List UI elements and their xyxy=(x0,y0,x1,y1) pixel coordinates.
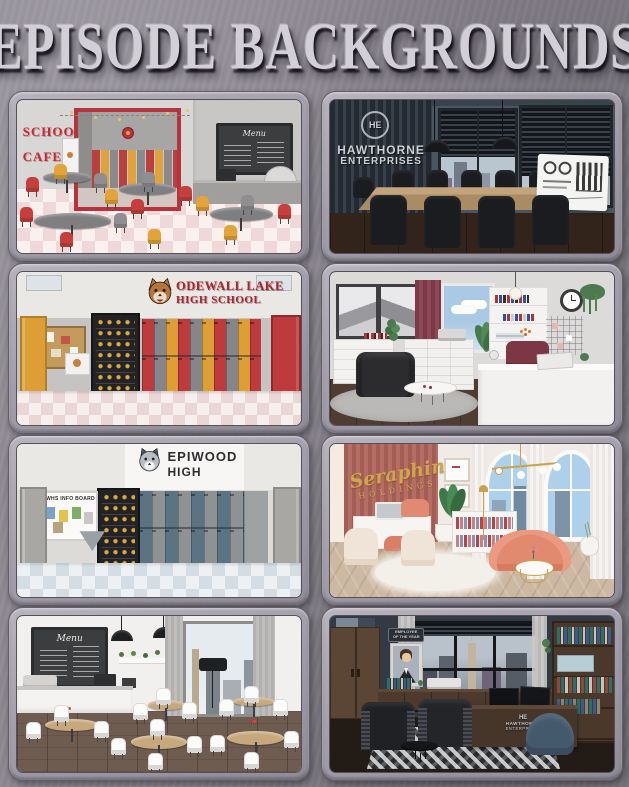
poster xyxy=(72,507,81,519)
poster: EPISODE BACKGROUNDS SCHOOL CAFETERIA Men… xyxy=(0,0,629,787)
chair xyxy=(26,722,41,739)
cream-tufted-chair xyxy=(344,528,378,565)
cafe-counter xyxy=(17,686,133,713)
chair-arm xyxy=(361,711,370,750)
school-line2: HIGH xyxy=(168,466,238,479)
menu-title: Menu xyxy=(34,634,105,644)
award-plaque: EMPLOYEE OF THE YEAR xyxy=(388,628,424,642)
pie-chart-doodle xyxy=(559,161,572,174)
chair xyxy=(187,736,202,753)
floor-lamp-pole xyxy=(483,491,484,540)
chair xyxy=(94,173,107,188)
scene-hawthorne-conference-room: HE HAWTHORNE ENTERPRISES xyxy=(329,99,615,254)
menu-title: Menu xyxy=(219,129,290,138)
coffee-cups xyxy=(423,385,426,388)
burgundy-curtain xyxy=(415,280,441,347)
books-row xyxy=(503,314,535,322)
chair xyxy=(244,752,259,769)
black-leather-armchair xyxy=(418,699,472,747)
school-line1: EPIWOOD xyxy=(168,450,238,464)
panel-school-cafeteria: SCHOOL CAFETERIA Menu xyxy=(8,91,310,262)
scene-seraphine-holdings-office: Seraphine HOLDINGS xyxy=(329,443,615,598)
pendant-cord xyxy=(515,272,516,287)
light-bulbs xyxy=(70,111,73,114)
chair xyxy=(156,688,171,705)
chair xyxy=(278,204,291,219)
office-chair xyxy=(370,195,407,245)
desk-monitor xyxy=(520,686,551,707)
yellow-door xyxy=(20,316,47,401)
cafe-table xyxy=(131,735,188,749)
chair xyxy=(26,177,39,192)
storage-box xyxy=(358,618,375,627)
frame-art xyxy=(452,466,460,468)
chair xyxy=(54,705,69,722)
clock-hand xyxy=(571,300,576,301)
books-row xyxy=(557,627,612,644)
menu-items-right xyxy=(257,142,284,167)
scene-coffee-shop: Menu xyxy=(16,615,302,773)
pinned-paper xyxy=(61,336,70,344)
plant-shelf xyxy=(119,658,167,664)
locker-vents xyxy=(142,322,261,324)
pinned-paper xyxy=(46,332,54,342)
folded-linens xyxy=(496,333,524,339)
gray-door xyxy=(20,487,47,574)
plaque-line2: OF THE YEAR xyxy=(389,635,423,639)
chair xyxy=(284,731,299,748)
office-chair xyxy=(424,196,461,248)
locker-vents xyxy=(139,530,244,532)
window-mullion xyxy=(570,454,572,537)
office-chair xyxy=(532,195,569,245)
fur-rug xyxy=(375,554,494,591)
chair xyxy=(105,189,118,204)
trophy-case xyxy=(91,313,140,398)
pendant-cord xyxy=(502,100,503,138)
locker-divider xyxy=(139,527,244,529)
poster xyxy=(84,512,93,524)
red-door xyxy=(271,315,301,403)
checkered-floor xyxy=(17,391,301,425)
text-doodle xyxy=(543,186,567,189)
chair xyxy=(60,232,73,247)
trophies xyxy=(102,493,136,565)
panel-odewall-lake-hallway: ODEWALL LAKE HIGH SCHOOL xyxy=(8,263,310,434)
poster xyxy=(59,510,68,522)
info-board-title: EWHS INFO BOARD xyxy=(42,496,96,502)
flower-bouquet xyxy=(529,548,532,551)
chair xyxy=(224,225,237,240)
portrait-face xyxy=(402,653,411,662)
cream-wall xyxy=(330,444,344,542)
locker-divider xyxy=(142,355,261,357)
bar-chart-doodle xyxy=(576,162,603,193)
menu-items-left xyxy=(224,145,251,167)
scene-hawthorne-executive-office: EMPLOYEE OF THE YEAR xyxy=(329,615,615,773)
cream-tufted-chair xyxy=(401,530,435,567)
chair xyxy=(196,196,209,211)
wolf-mascot-icon xyxy=(136,447,163,474)
poster xyxy=(46,507,55,519)
panel-coffee-shop: Menu xyxy=(8,607,310,781)
flower-stem xyxy=(533,551,534,559)
gray-door xyxy=(273,487,301,574)
panel-bright-modern-office xyxy=(321,263,623,434)
school-name-sign: EPIWOOD HIGH xyxy=(168,450,238,478)
locker-vents xyxy=(142,358,261,360)
binders xyxy=(387,678,413,689)
panel-hawthorne-conference-room: HE HAWTHORNE ENTERPRISES xyxy=(321,91,623,262)
table-legs xyxy=(421,393,422,402)
coffee-table xyxy=(404,381,457,395)
chair xyxy=(54,164,67,179)
shelf-plants xyxy=(119,652,124,657)
panel-seraphine-holdings-office: Seraphine HOLDINGS xyxy=(321,435,623,606)
poster-title: EPISODE BACKGROUNDS xyxy=(0,9,629,85)
poster xyxy=(53,522,63,533)
shelf-lines xyxy=(554,645,615,647)
round-side-table xyxy=(401,741,438,750)
chair-arm xyxy=(463,708,472,747)
chair xyxy=(94,721,109,738)
pendant-lamp-icon xyxy=(111,630,133,641)
panel-hawthorne-executive-office: EMPLOYEE OF THE YEAR xyxy=(321,607,623,781)
desk-plant xyxy=(418,680,423,686)
chair xyxy=(142,172,155,187)
chair xyxy=(148,229,161,244)
trophies xyxy=(96,318,135,393)
scene-bright-modern-office xyxy=(329,271,615,426)
window-blinds xyxy=(415,624,534,636)
flag-mascot-icon xyxy=(73,359,81,367)
storage-box xyxy=(557,655,594,672)
panel-epiwood-high-hallway: EPIWOOD HIGH EWHS INFO BOARD xyxy=(8,435,310,606)
laptop xyxy=(537,352,574,370)
plant-tendrils xyxy=(583,296,585,312)
window-mullion xyxy=(415,668,534,671)
school-line2: HIGH SCHOOL xyxy=(176,295,284,307)
chair xyxy=(182,702,197,719)
chair xyxy=(244,686,259,703)
printer xyxy=(427,678,461,689)
desk-mirror xyxy=(489,350,499,360)
white-desk xyxy=(478,364,614,425)
checkered-floor xyxy=(17,563,301,597)
cash-register xyxy=(216,169,236,181)
memo-note xyxy=(566,335,572,341)
cougar-mascot-icon xyxy=(145,277,175,307)
memo-note xyxy=(557,343,563,349)
city-building xyxy=(555,489,570,537)
school-name-sign: ODEWALL LAKE HIGH SCHOOL xyxy=(176,280,284,307)
pink-office-chair xyxy=(401,499,429,517)
scene-epiwood-high-hallway: EPIWOOD HIGH EWHS INFO BOARD xyxy=(16,443,302,598)
storage-box xyxy=(336,618,359,627)
table-legs xyxy=(415,750,416,759)
cabinet-handles xyxy=(351,669,354,677)
pendant-cord xyxy=(434,100,435,141)
lockers xyxy=(142,319,261,391)
chair xyxy=(273,699,288,716)
chair xyxy=(114,213,127,228)
company-sign: HAWTHORNE ENTERPRISES xyxy=(333,144,430,167)
chair xyxy=(241,195,254,210)
poster-header: EPISODE BACKGROUNDS xyxy=(0,8,629,86)
chair xyxy=(150,719,165,736)
mascot-flag xyxy=(65,353,90,375)
white-vase xyxy=(580,536,599,556)
floor-lamp-shade xyxy=(199,658,227,670)
logo-center xyxy=(126,131,130,135)
he-logo-icon: HE xyxy=(361,111,389,139)
chandelier-bulbs xyxy=(495,467,503,475)
pie-chart-doodle xyxy=(543,161,556,174)
desk-plant xyxy=(580,353,589,361)
transom-window xyxy=(26,275,62,291)
mountain-art-frame xyxy=(336,284,379,339)
string-lights xyxy=(60,102,191,117)
scene-school-cafeteria: SCHOOL CAFETERIA Menu xyxy=(16,99,302,254)
books xyxy=(364,333,387,339)
text-doodle xyxy=(543,180,571,183)
window-mullion xyxy=(548,489,593,491)
chair xyxy=(148,753,163,770)
floor-lamp-pole xyxy=(212,671,213,708)
company-line2: ENTERPRISES xyxy=(333,157,430,168)
scene-odewall-lake-hallway: ODEWALL LAKE HIGH SCHOOL xyxy=(16,271,302,426)
school-line1: ODEWALL LAKE xyxy=(176,280,284,293)
lockers xyxy=(139,491,244,563)
cabinet-seam xyxy=(355,628,357,718)
books-row xyxy=(557,677,612,692)
wall-panel xyxy=(244,491,268,563)
banner-mascot-icon xyxy=(67,152,73,158)
chair xyxy=(210,735,225,752)
memo-note xyxy=(552,323,558,329)
trophy-case xyxy=(97,488,141,570)
chandelier-stem xyxy=(520,444,521,465)
chair xyxy=(131,199,144,214)
hallway-doorway xyxy=(74,108,181,211)
locker-vents xyxy=(139,494,244,496)
wall-frame xyxy=(444,458,471,482)
chair xyxy=(111,738,126,755)
chair xyxy=(20,207,33,222)
cafeteria-table xyxy=(34,213,111,228)
pinned-paper xyxy=(51,349,61,357)
hanging-plant xyxy=(542,639,550,647)
chair xyxy=(133,703,148,720)
chair xyxy=(219,699,234,716)
memo-grid-board xyxy=(546,316,583,354)
sheer-curtain xyxy=(590,444,614,579)
gold-table-base xyxy=(520,569,548,582)
hall-mascot-logo-icon xyxy=(122,127,134,139)
chair xyxy=(179,186,192,201)
office-chair xyxy=(478,196,515,248)
cloud xyxy=(451,305,477,314)
